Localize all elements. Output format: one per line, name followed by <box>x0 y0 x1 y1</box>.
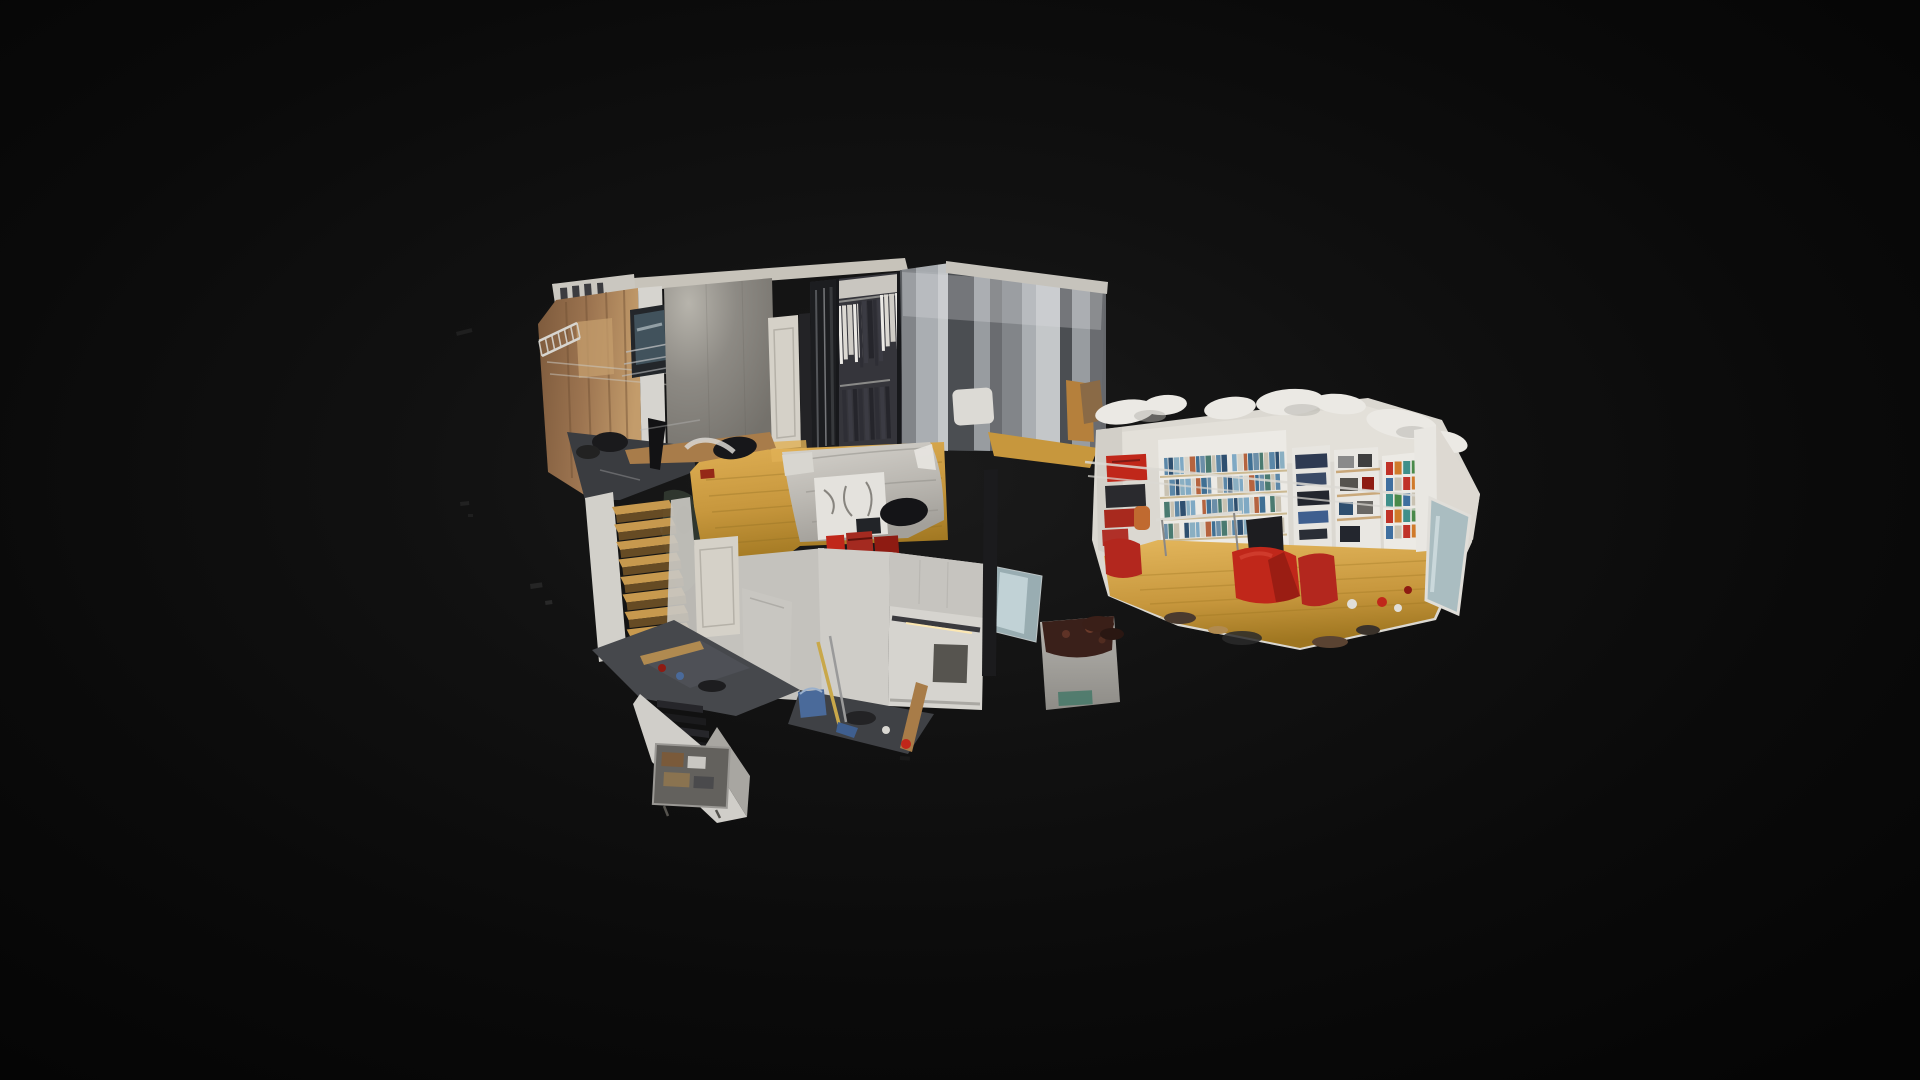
3d-tour-viewer <box>0 0 1920 1080</box>
book-spine <box>1255 475 1259 491</box>
storage-shelf <box>653 744 730 818</box>
book-spine <box>1259 453 1263 470</box>
plywood-light-panel <box>576 318 614 378</box>
bathroom-sink <box>952 387 994 426</box>
book-spine <box>1232 454 1237 471</box>
book-spine <box>1212 521 1216 536</box>
book-spine <box>1168 458 1173 475</box>
book-spine <box>1207 477 1211 493</box>
book-spine <box>1200 522 1205 537</box>
book-spine <box>1237 520 1243 535</box>
bin-label <box>1058 690 1093 706</box>
book-spine <box>1269 452 1275 469</box>
book-spine <box>1259 475 1264 491</box>
kitchen-appliance <box>933 644 968 683</box>
paint-can <box>1386 478 1393 491</box>
paint-can <box>1386 462 1393 475</box>
paint-can <box>1395 510 1402 523</box>
book-spine <box>1237 454 1243 471</box>
paint-can <box>1403 525 1410 538</box>
book-spine <box>1259 497 1265 513</box>
book-spine <box>1202 500 1206 516</box>
dollhouse-canvas[interactable] <box>0 0 1920 1080</box>
red-chair-small <box>1104 538 1142 578</box>
paint-can <box>1403 461 1410 474</box>
book-spine <box>1216 521 1221 536</box>
wardrobe <box>810 271 903 452</box>
book-spine <box>1221 455 1227 472</box>
book-spine <box>1248 453 1253 470</box>
book-spine <box>1201 478 1207 494</box>
concrete-wall <box>664 278 776 458</box>
book-spine <box>1174 523 1180 538</box>
book-spine <box>1176 479 1180 495</box>
paint-can <box>1386 526 1393 539</box>
book-spine <box>1169 479 1175 495</box>
book-spine <box>1244 453 1248 470</box>
book-spine <box>1184 523 1189 538</box>
book-spine <box>1196 478 1201 494</box>
hallway-door <box>768 315 801 450</box>
book-spine <box>1212 455 1216 472</box>
doorway-gap <box>799 313 812 450</box>
book-spine <box>1221 521 1227 536</box>
bathroom-corridor <box>900 261 1108 468</box>
book-spine <box>1205 456 1211 473</box>
kitchen <box>888 552 985 710</box>
bed-pillow <box>782 452 814 476</box>
book-spine <box>1190 456 1196 473</box>
book-spine <box>1250 497 1254 513</box>
book-spine <box>1265 474 1271 490</box>
book-spine <box>1275 496 1281 512</box>
book-spine <box>1186 501 1190 517</box>
book-spine <box>1244 497 1250 513</box>
book-spine <box>1170 502 1174 518</box>
book-spine <box>1180 479 1185 495</box>
book-spine <box>1275 452 1279 469</box>
paint-can <box>1395 462 1402 475</box>
book-spine <box>1164 502 1170 518</box>
book-spine <box>1205 522 1211 537</box>
book-spine <box>1175 501 1180 517</box>
book-spine <box>1196 522 1200 537</box>
book-spine <box>1280 451 1285 468</box>
orange-cone <box>1134 506 1150 530</box>
book-spine <box>1168 524 1173 539</box>
book-spine <box>1190 522 1196 537</box>
support-pole <box>982 469 998 676</box>
book-spine <box>1164 480 1169 496</box>
book-spine <box>1216 455 1221 472</box>
paint-can <box>1403 477 1410 490</box>
book-spine <box>1264 452 1269 469</box>
book-spine <box>1191 500 1196 516</box>
paint-can <box>1395 478 1402 491</box>
book-spine <box>1180 501 1186 517</box>
book-spine <box>1254 497 1259 513</box>
book-spine <box>1164 458 1168 475</box>
viewer-background <box>0 0 1920 1080</box>
blue-bucket <box>798 689 827 718</box>
book-spine <box>1228 520 1232 535</box>
study-wing <box>1080 380 1480 650</box>
red-armchair-2 <box>1298 553 1338 606</box>
paint-can <box>1403 509 1410 522</box>
book-spine <box>1253 453 1259 470</box>
paint-can <box>1386 510 1393 523</box>
book-spine <box>1200 456 1205 473</box>
paint-can <box>1395 494 1402 507</box>
bookshelf-c <box>1334 447 1381 551</box>
book-spine <box>1270 496 1275 512</box>
paint-can <box>1395 526 1402 539</box>
book-spine <box>1206 499 1211 515</box>
paint-can <box>1386 494 1393 507</box>
book-spine <box>1196 456 1200 473</box>
